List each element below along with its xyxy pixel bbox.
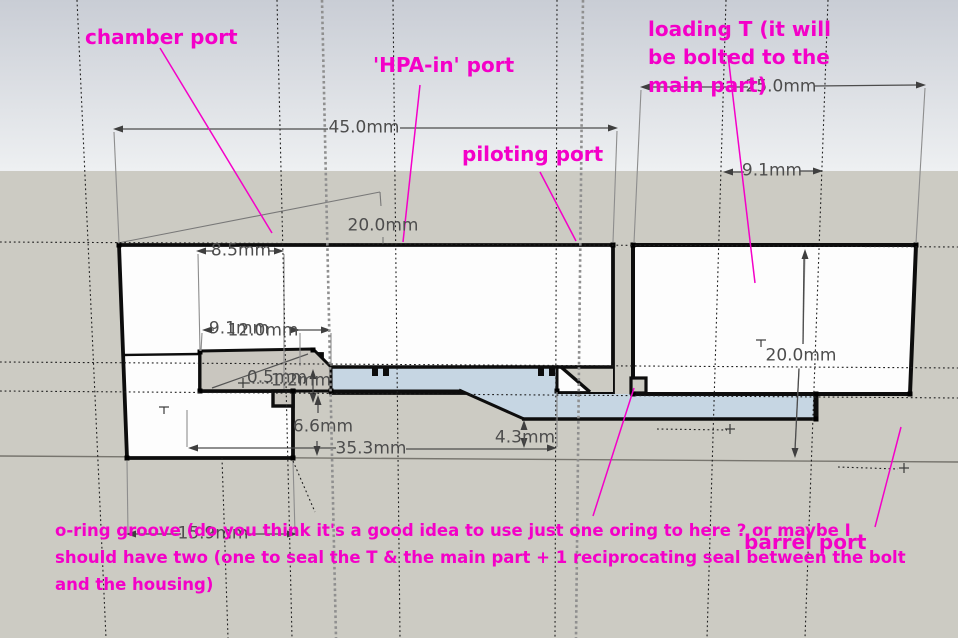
dim-12-0: 12.0mm (228, 323, 299, 340)
dim-1-2: 1.2mm (271, 373, 331, 390)
annotation-chamber-port: chamber port (85, 27, 238, 47)
sketchup-canvas: 45.0mm 25.0mm 9.1mm 20.0mm 8.5mm 9.1mm 1… (0, 0, 958, 638)
dim-8-5: 8.5mm (211, 243, 271, 260)
annotation-oring-note-line3: and the housing) (55, 577, 213, 594)
dim-35-3: 35.3mm (336, 441, 407, 458)
annotation-loading-t-line3: main part) (648, 75, 767, 95)
annotation-loading-t-line1: loading T (it will (648, 19, 831, 39)
dim-main-width: 45.0mm (329, 120, 400, 137)
loading-t-body (633, 245, 916, 394)
dim-6-6: 6.6mm (293, 419, 353, 436)
dim-t-height: 20.0mm (766, 348, 837, 365)
slab-block-edge (124, 354, 200, 355)
loading-t-part (631, 245, 916, 394)
dim-t-bore: 9.1mm (742, 163, 802, 180)
annotation-piloting-port: piloting port (462, 144, 603, 164)
dim-main-height: 20.0mm (348, 218, 419, 235)
annotation-oring-note-line1: o-ring groove (do you think it's a good … (55, 523, 851, 540)
annotation-hpa-in-port: 'HPA-in' port (373, 55, 514, 75)
annotation-loading-t-line2: be bolted to the (648, 47, 830, 67)
annotation-oring-note-line2: should have two (one to seal the T & the… (55, 550, 906, 567)
dim-4-3: 4.3mm (495, 430, 555, 447)
